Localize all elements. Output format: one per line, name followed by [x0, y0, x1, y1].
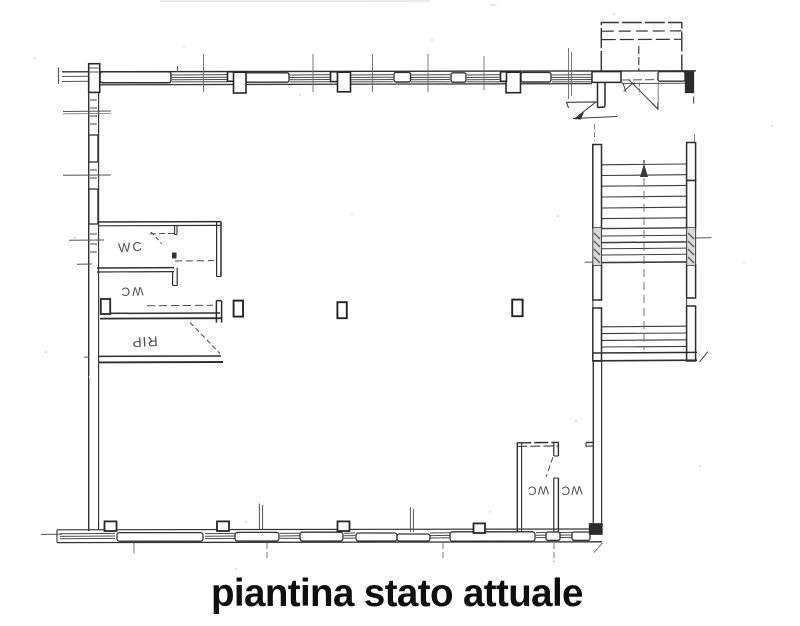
svg-text:RIP: RIP [131, 333, 158, 350]
svg-text:WC: WC [527, 483, 549, 498]
svg-text:WC: WC [560, 483, 582, 498]
svg-text:WC: WC [118, 239, 145, 256]
svg-text:WC: WC [119, 284, 143, 299]
